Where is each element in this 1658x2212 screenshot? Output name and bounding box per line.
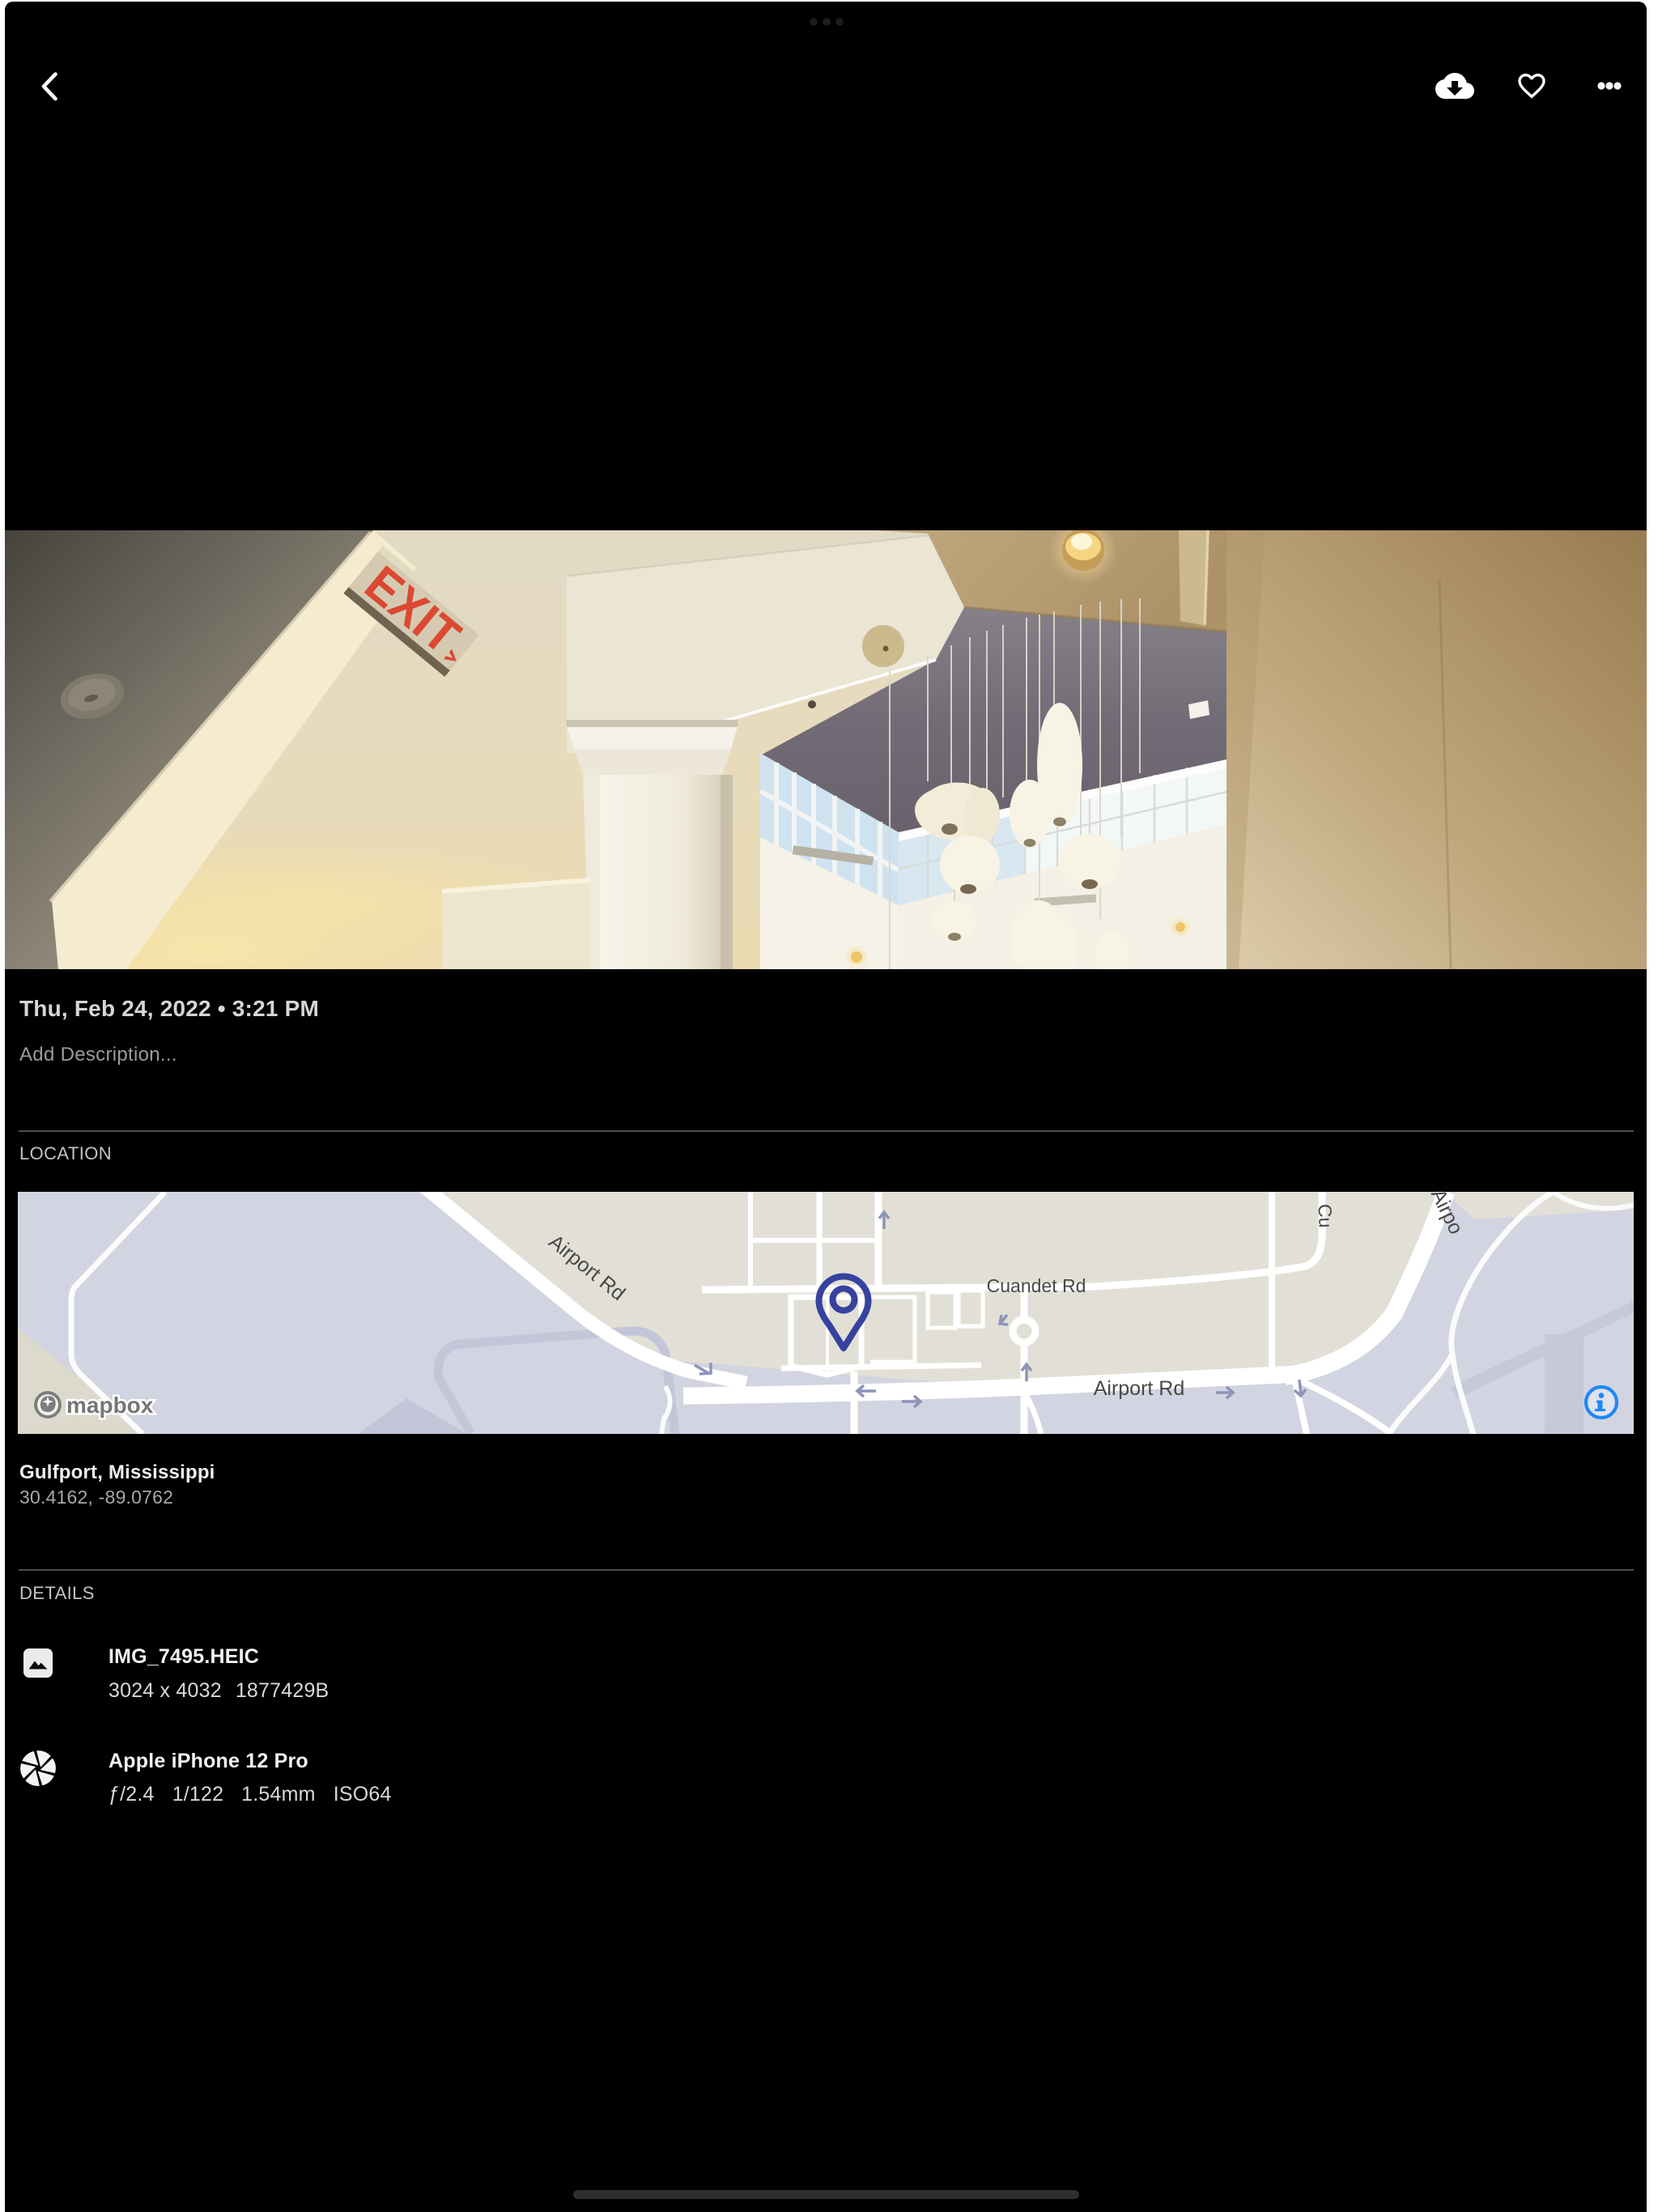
svg-text:Cuandet Rd: Cuandet Rd <box>987 1275 1086 1296</box>
svg-text:mapbox: mapbox <box>66 1393 154 1418</box>
svg-text:Cu: Cu <box>1314 1204 1336 1228</box>
svg-text:Airport Rd: Airport Rd <box>1094 1377 1185 1400</box>
